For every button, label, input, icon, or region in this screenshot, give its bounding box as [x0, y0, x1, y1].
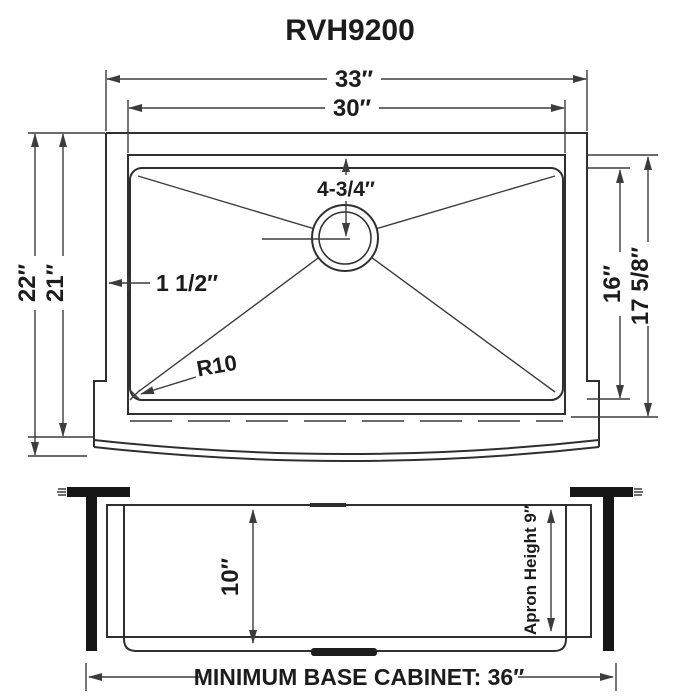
faucet-deck-mark	[310, 503, 346, 507]
dim-label-bowl-width: 30″	[333, 95, 372, 122]
diagram-canvas: RVH9200 4-3/4″ 1 1/2″ R10 33″ 30″ 22″ 21…	[0, 0, 700, 700]
countertop-right-hatch	[634, 489, 643, 495]
cabinet-side-right	[603, 497, 614, 651]
dim-label-corner-radius: R10	[195, 350, 239, 382]
drain-outer-circle	[312, 205, 378, 271]
apron-front-upper-curve	[94, 440, 599, 454]
drain-fitting	[311, 648, 377, 656]
dim-label-rim-width: 1 1/2″	[156, 270, 218, 296]
front-apron-panel	[124, 505, 566, 651]
cabinet-side-left	[86, 497, 97, 651]
countertop-right	[570, 487, 633, 497]
leader-corner-radius	[141, 377, 196, 394]
dim-label-bowl-front-to-back: 16″	[599, 264, 626, 303]
front-sink-body	[107, 505, 591, 637]
dim-label-rim-front-to-back: 17 5/8″	[627, 246, 654, 325]
dim-label-bowl-height: 10″	[217, 557, 244, 596]
dim-label-inner-depth: 21″	[42, 263, 69, 302]
dim-label-drain-offset: 4-3/4″	[317, 178, 375, 201]
dim-label-overall-depth: 22″	[14, 263, 41, 302]
countertop-left	[67, 487, 130, 497]
dim-label-overall-width: 33″	[335, 66, 374, 93]
page-title: RVH9200	[285, 14, 415, 47]
dim-label-apron-height: Apron Height 9″	[521, 505, 540, 635]
countertop-left-hatch	[57, 489, 66, 495]
sink-dimension-diagram: RVH9200 4-3/4″ 1 1/2″ R10 33″ 30″ 22″ 21…	[0, 0, 700, 700]
base-cabinet-note: MINIMUM BASE CABINET: 36″	[194, 664, 524, 690]
